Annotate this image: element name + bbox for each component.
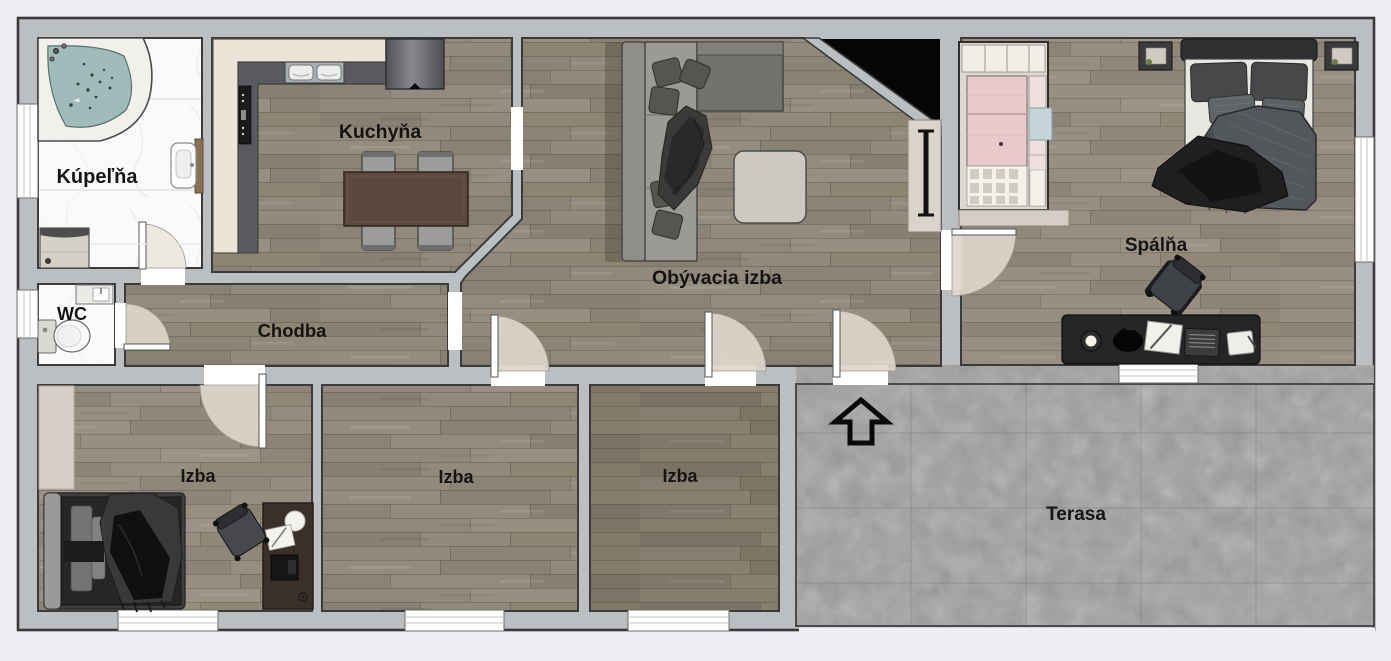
svg-text:Izba: Izba xyxy=(438,467,474,487)
svg-text:Obývacia izba: Obývacia izba xyxy=(652,267,782,289)
svg-text:WC: WC xyxy=(57,304,87,324)
svg-text:Izba: Izba xyxy=(180,466,216,486)
svg-text:Spálňa: Spálňa xyxy=(1125,235,1188,256)
svg-text:Izba: Izba xyxy=(662,466,698,486)
svg-text:Kúpeľňa: Kúpeľňa xyxy=(56,166,138,188)
svg-text:Terasa: Terasa xyxy=(1046,504,1106,525)
svg-text:Kuchyňa: Kuchyňa xyxy=(339,121,422,143)
svg-text:Chodba: Chodba xyxy=(258,320,328,341)
